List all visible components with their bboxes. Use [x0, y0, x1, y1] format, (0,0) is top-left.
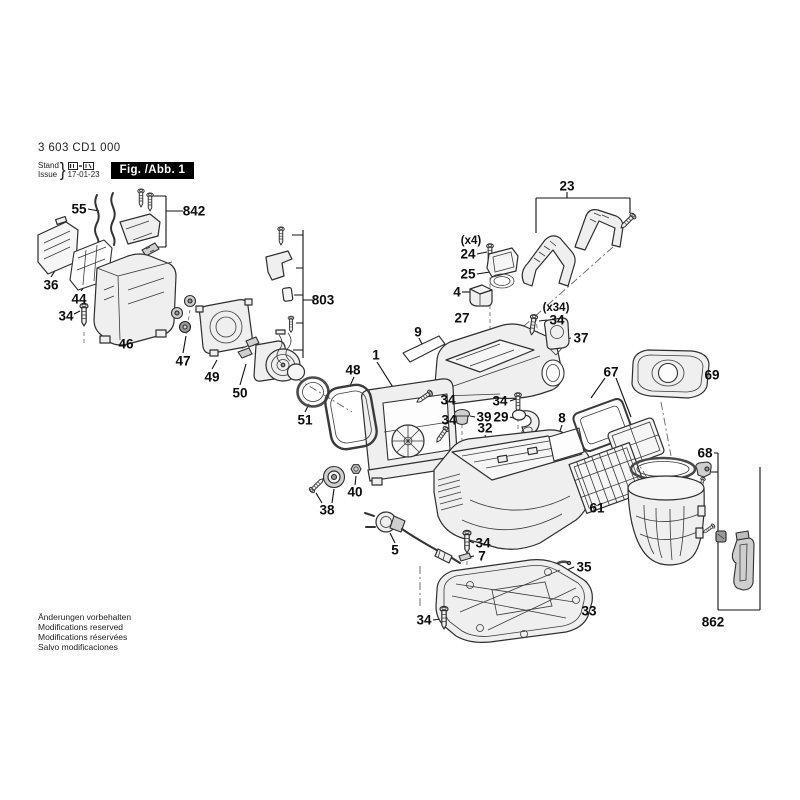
part-label-25-14: 25 — [460, 267, 476, 282]
part-4-float-valve — [470, 285, 492, 306]
exploded-view-drawing: 55842364434464749505180323(x4)2425427(x3… — [0, 0, 800, 800]
part-label-32-28: 32 — [477, 421, 492, 436]
part-label-862-42: 862 — [702, 615, 725, 630]
modifications-notice: Änderungen vorbehalten Modifications res… — [38, 612, 131, 652]
part-label-1-21: 1 — [372, 348, 380, 363]
part-label-4-15: 4 — [453, 285, 461, 300]
part-23-handles — [522, 210, 637, 286]
part-label-61-33: 61 — [589, 501, 605, 516]
part-label-7-38: 7 — [478, 549, 486, 564]
part-label-34-4: 34 — [58, 309, 74, 324]
part-label-67-30: 67 — [603, 365, 618, 380]
part-label-29-27: 29 — [493, 410, 508, 425]
part-label-55-0: 55 — [71, 202, 87, 217]
part-label-51-9: 51 — [297, 413, 313, 428]
part-label-33-40: 33 — [581, 604, 597, 619]
part-label-38-35: 38 — [319, 503, 335, 518]
part-69-tank-lid — [632, 350, 709, 398]
part-label-23-11: 23 — [559, 179, 575, 194]
part-label-48-22: 48 — [345, 363, 361, 378]
part-34-screw-f — [463, 530, 471, 553]
part-label-803-10: 803 — [312, 293, 335, 308]
part-label-37-19: 37 — [573, 331, 588, 346]
part-34-screw-d — [515, 393, 522, 412]
part-38-roller-kit — [308, 467, 344, 494]
part-51-motor-turbine — [254, 341, 329, 407]
part-39-valve-cap — [455, 410, 470, 425]
part-label-35-39: 35 — [576, 560, 592, 575]
part-label-68-32: 68 — [697, 446, 713, 461]
part-label-49-7: 49 — [204, 370, 219, 385]
notice-line-de: Änderungen vorbehalten — [38, 612, 131, 622]
part-7-pin — [459, 553, 471, 561]
part-label-47-6: 47 — [175, 354, 190, 369]
part-label-36-2: 36 — [43, 278, 59, 293]
part-842-bracket-kit — [120, 189, 160, 256]
part-862-latch-kit — [702, 523, 754, 590]
parts-diagram-page: 3 603 CD1 000 Stand Issue } 17-01-23 — [0, 0, 800, 800]
part-label-50-8: 50 — [232, 386, 247, 401]
part-label-842-1: 842 — [183, 204, 206, 219]
part-label-x4-12: (x4) — [461, 235, 482, 247]
part-label-46-5: 46 — [118, 337, 134, 352]
part-label-34-23: 34 — [440, 393, 456, 408]
part-label-69-31: 69 — [704, 368, 719, 383]
part-label-44-3: 44 — [71, 292, 87, 307]
part-49-fan-housing — [196, 299, 252, 356]
part-label-34-18: 34 — [549, 313, 565, 328]
notice-line-fr: Modifications réservées — [38, 632, 131, 642]
part-label-24-13: 24 — [460, 247, 476, 262]
part-label-5-36: 5 — [391, 543, 399, 558]
notice-line-en: Modifications reserved — [38, 622, 131, 632]
part-label-9-20: 9 — [414, 325, 422, 340]
part-34-screw-a — [80, 303, 88, 326]
part-label-8-29: 8 — [558, 411, 566, 426]
part-40-nut — [351, 465, 361, 474]
part-55-cables — [95, 193, 115, 246]
part-33-base-plate — [436, 560, 592, 643]
part-label-34-25: 34 — [441, 413, 457, 428]
part-label-34-24: 34 — [492, 394, 508, 409]
part-46-motor-housing — [94, 254, 176, 345]
part-label-40-34: 40 — [347, 485, 362, 500]
part-label-34-41: 34 — [416, 613, 432, 628]
part-label-27-16: 27 — [454, 311, 469, 326]
notice-line-es: Salvo modificaciones — [38, 642, 131, 652]
part-25-seal-set — [487, 248, 518, 288]
